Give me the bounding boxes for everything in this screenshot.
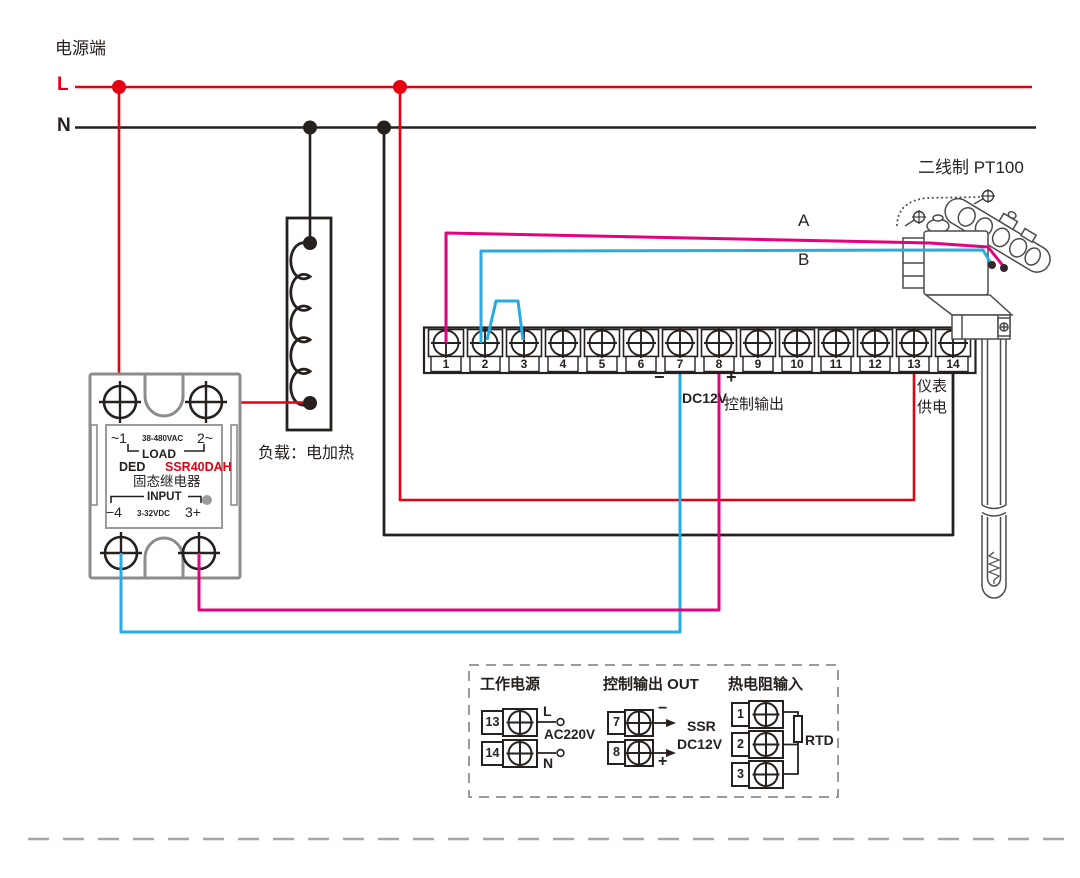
junction-dot	[303, 396, 317, 410]
heater-load-label: 负载：电加热	[258, 445, 354, 462]
sensor-head-body	[924, 231, 988, 295]
junction-dot	[377, 121, 391, 135]
wire-b-label: B	[798, 251, 809, 269]
power-source-label: 电源端	[55, 40, 106, 58]
terminal-number-7: 7	[665, 357, 695, 372]
ssr-terminal4-label: −4	[106, 505, 122, 520]
rtd-resistor-symbol	[794, 716, 802, 742]
ssr-voltage-range-label: 38-480VAC	[142, 435, 183, 444]
ssr-terminal2-label: 2~	[197, 431, 213, 446]
sensor-probe	[982, 339, 1006, 598]
terminal-number-12: 12	[860, 357, 890, 372]
junction-dot	[112, 80, 126, 94]
meter-supply-label-line1: 仪表	[917, 379, 947, 395]
legend-work-power-title: 工作电源	[480, 677, 540, 693]
terminal-number-10: 10	[782, 357, 812, 372]
legend-t3: 3	[732, 765, 749, 784]
dc12v-label: DC12V	[682, 391, 727, 406]
wire-b-end-dot	[988, 261, 996, 269]
dc12v-minus-label: −	[654, 368, 665, 387]
ssr-terminal3-label: 3+	[185, 505, 201, 520]
legend-rtd-label: RTD	[805, 733, 834, 748]
legend-ssr-label: SSR	[687, 719, 716, 734]
terminal-number-5: 5	[587, 357, 617, 372]
ssr-load-word: LOAD	[142, 448, 176, 461]
rtd-element-zigzag	[989, 552, 999, 584]
terminal-number-4: 4	[548, 357, 578, 372]
legend-t13: 13	[482, 713, 503, 732]
terminal-strip	[424, 328, 976, 374]
legend-n-label: N	[543, 756, 553, 771]
legend-t7: 7	[608, 713, 625, 732]
legend-t8: 8	[608, 743, 625, 762]
pt100-title: 二线制 PT100	[918, 159, 1024, 177]
lid-screw	[912, 210, 926, 224]
heater-coil	[291, 243, 310, 405]
l-label: L	[57, 75, 69, 96]
l-loop-to-terminal13	[400, 87, 914, 500]
legend-ac220v-label: AC220V	[544, 728, 595, 743]
wire-a-label: A	[798, 212, 809, 230]
terminal-number-2: 2	[470, 357, 500, 372]
control-plus-label: +	[726, 368, 737, 387]
legend-minus-label: −	[658, 700, 667, 717]
ssr-input-range-label: 3-32VDC	[137, 510, 170, 519]
control-output-plus-wire	[199, 373, 719, 610]
junction-dot	[303, 121, 317, 135]
junction-dot	[393, 80, 407, 94]
wiring-diagram: 电源端 L N 负载：电加热 ~1 38-480VAC 2~ LOAD DED …	[0, 0, 1080, 878]
wire-a-end-dot	[1000, 264, 1008, 272]
sensor-neck	[926, 295, 1012, 315]
legend-t14: 14	[482, 744, 503, 763]
lid-screw	[981, 189, 995, 203]
ssr-led-dot	[202, 495, 212, 505]
terminal-number-6: 6	[626, 357, 656, 372]
arrow-icon	[666, 719, 676, 727]
ssr-input-word: INPUT	[147, 491, 182, 503]
terminal-number-3: 3	[509, 357, 539, 372]
n-label: N	[57, 116, 71, 137]
legend-dc12v-label: DC12V	[677, 737, 722, 752]
legend-control-output-title: 控制输出 OUT	[603, 677, 699, 693]
ssr-model-label: SSR40DAH	[165, 461, 232, 475]
terminal-number-14: 14	[938, 357, 968, 372]
terminal-number-13: 13	[899, 357, 929, 372]
legend-t2: 2	[732, 735, 749, 754]
terminal-number-9: 9	[743, 357, 773, 372]
terminal-number-1: 1	[431, 357, 461, 372]
probe-break-symbol	[982, 505, 1006, 509]
ssr-name-cn-label: 固态继电器	[133, 475, 201, 490]
legend-t1: 1	[732, 705, 749, 724]
control-output-label: 控制输出	[724, 397, 784, 413]
probe-break-symbol	[982, 513, 1006, 517]
meter-supply-label-line2: 供电	[917, 400, 947, 416]
legend-plus-label: +	[658, 753, 667, 770]
legend-l-label: L	[543, 704, 552, 719]
legend-rtd-input-title: 热电阻输入	[728, 677, 803, 693]
terminal-number-11: 11	[821, 357, 851, 372]
junction-dot	[303, 236, 317, 250]
arrow-icon	[666, 749, 676, 757]
ssr-terminal1-label: ~1	[111, 431, 127, 446]
ssr-brand-label: DED	[119, 461, 145, 475]
